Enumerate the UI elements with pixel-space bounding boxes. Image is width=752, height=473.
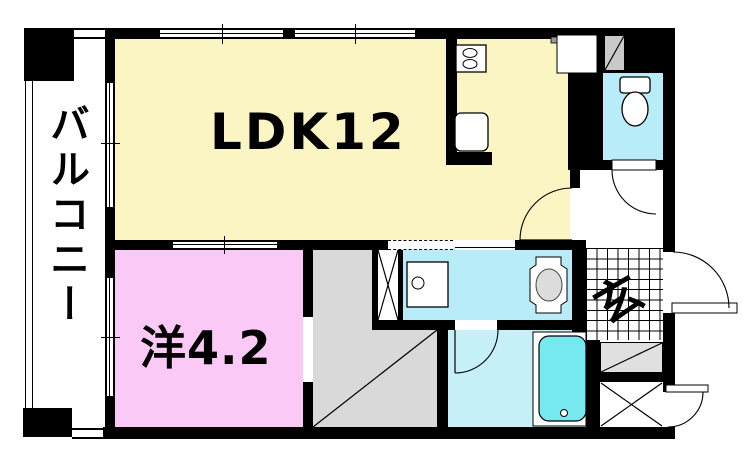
pillar-bottom-left	[23, 408, 72, 437]
closet-inner	[378, 250, 398, 320]
room-toilet	[603, 73, 663, 160]
kitchen-counter-edge	[446, 39, 457, 155]
window-tick	[224, 236, 225, 254]
wall-segment	[663, 313, 675, 392]
wall-segment	[283, 28, 295, 39]
wall-segment	[105, 396, 115, 427]
wall-segment	[105, 28, 115, 83]
trunk-room-x	[601, 383, 662, 426]
balcony-rail-top	[74, 28, 105, 39]
wall-segment	[303, 382, 313, 427]
balcony-rail	[25, 81, 33, 408]
window-tick	[101, 143, 120, 144]
window-balcony-ldk	[105, 83, 115, 207]
open-passage-washroom	[388, 240, 453, 250]
window-tick	[101, 337, 120, 338]
wall-segment	[105, 240, 173, 250]
trunk-room-x	[601, 383, 662, 426]
room-service-a	[313, 250, 372, 427]
pipe-space	[604, 35, 625, 71]
room-service-b	[372, 330, 437, 427]
wall-segment	[568, 39, 603, 170]
door-gap-western	[303, 317, 313, 382]
wall-segment	[656, 160, 663, 170]
floor-plan: LDK12 洋4.2 バルコニー 玄	[0, 0, 752, 473]
balcony-label: バルコニー	[46, 103, 86, 328]
entrance-door-arc	[673, 252, 729, 308]
balcony-rail-bottom	[72, 428, 103, 439]
window-tick	[222, 24, 223, 44]
pocket-door-guide	[311, 248, 312, 315]
trunk-door-arc	[668, 392, 703, 427]
toilet-door-arc	[612, 170, 656, 214]
entrance-door-leaf	[672, 303, 737, 313]
wall-segment	[437, 328, 448, 427]
wall-segment	[663, 28, 675, 252]
wall-segment	[572, 240, 586, 340]
ldk-label: LDK12	[210, 103, 407, 161]
wall-segment	[497, 320, 577, 330]
wall-segment	[103, 427, 675, 439]
shoe-cabinet	[600, 342, 663, 373]
sliding-door-ldk-western	[173, 240, 277, 250]
sliding-door-washroom	[455, 240, 515, 250]
pillar-top-left	[24, 28, 74, 81]
wall-segment	[600, 373, 663, 382]
window-tick	[355, 24, 356, 44]
wall-segment	[515, 240, 572, 250]
wall-segment	[415, 28, 597, 39]
room-washroom	[403, 248, 572, 320]
wall-segment	[570, 170, 580, 188]
wall-segment	[603, 160, 612, 170]
kitchen-counter-edge	[446, 152, 492, 165]
wall-segment	[586, 330, 600, 428]
room-bathroom	[448, 330, 586, 427]
toilet-door-leaf	[612, 160, 656, 170]
western-room-label: 洋4.2	[140, 312, 272, 378]
